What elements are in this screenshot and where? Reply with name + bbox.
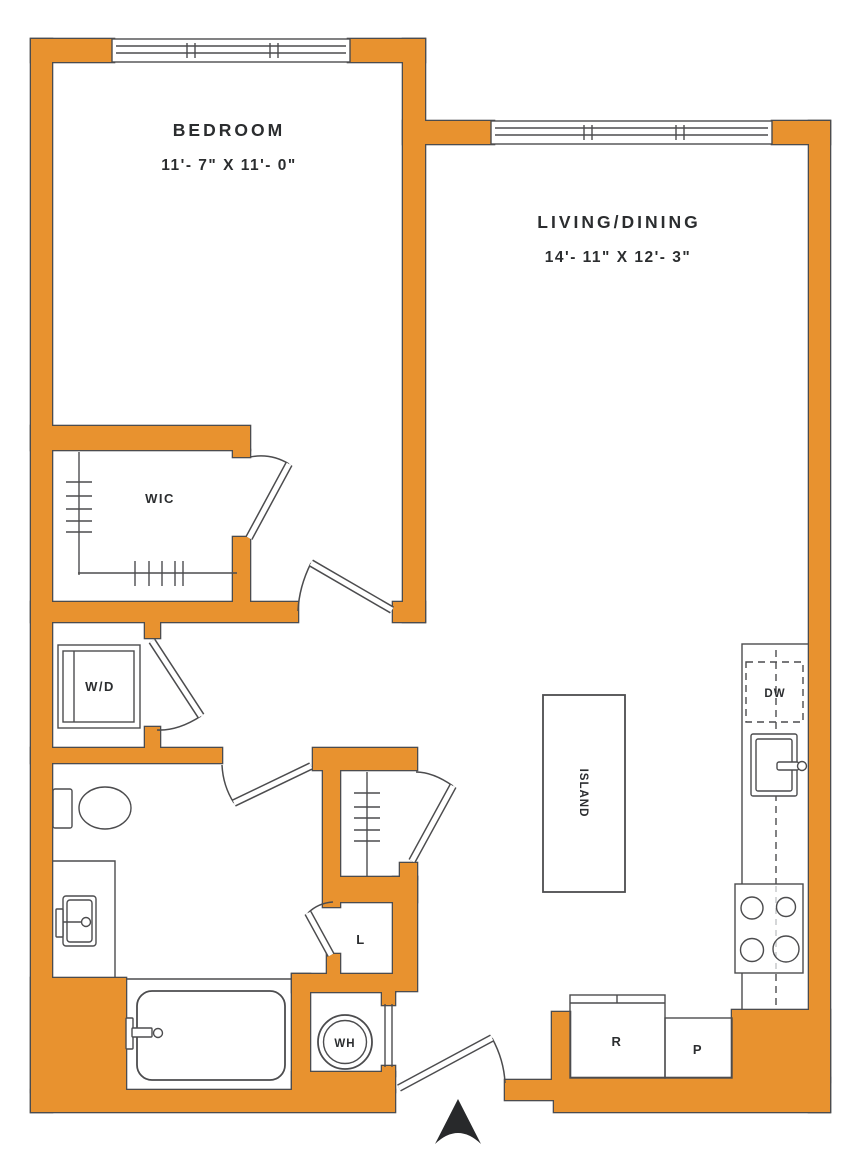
entry-closet-rod [354,772,380,877]
wall-segment [554,1078,830,1112]
wall-segment [732,1010,830,1082]
wall-segment [31,748,222,763]
wall-segment [31,39,52,1112]
bedroom-label: BEDROOM [173,120,285,140]
bathroom-vanity [52,861,115,977]
toilet [53,787,131,829]
wall-segment [403,121,494,144]
wall-segment [31,978,126,1092]
floor-plan-drawing: BEDROOM 11'- 7" X 11'- 0" LIVING/DINING … [0,0,847,1153]
wall-segment [145,622,160,638]
washer-dryer-label: W/D [85,679,115,694]
floor-plan: BEDROOM 11'- 7" X 11'- 0" LIVING/DINING … [0,0,847,1153]
wall-segment [552,1012,570,1080]
refrigerator-label: R [612,1034,623,1049]
wall-segment [31,39,114,62]
north-arrow-icon [435,1099,481,1144]
water-heater-door [385,1004,392,1067]
wall-segment [400,863,417,879]
laundry-closet-door [152,641,201,730]
wic-door [249,456,289,538]
wic-closet-rods [66,452,237,586]
living-label: LIVING/DINING [537,212,700,232]
living-dimensions: 14'- 11" X 12'- 3" [545,249,691,266]
wic-label: WIC [145,491,175,506]
bedroom-window [112,39,350,62]
entry-closet-door [412,772,453,861]
labels: BEDROOM 11'- 7" X 11'- 0" LIVING/DINING … [85,120,785,1057]
bathroom-door [222,765,311,803]
wall-segment [809,121,830,1112]
island-label: ISLAND [577,769,589,818]
pantry-label: P [693,1042,703,1057]
wall-segment [31,426,250,450]
water-heater-label: WH [334,1038,355,1050]
wall-segment [393,877,417,991]
wall-segment [31,1090,395,1112]
bathtub [126,979,292,1080]
wall-segment [233,450,250,457]
wall-segment [382,992,395,1005]
living-window [491,121,772,144]
wall-segment [313,748,417,770]
wall-segment [233,537,250,604]
range [735,884,803,973]
wall-segment [393,602,425,622]
walls [31,39,830,1112]
bedroom-door [298,563,392,611]
bedroom-dimensions: 11'- 7" X 11'- 0" [161,157,296,174]
linen-closet-door [308,902,333,955]
walls-fill [31,39,830,1112]
linen-label: L [356,932,365,947]
wall-segment [292,1072,395,1092]
entry-door [399,1038,505,1088]
wall-segment [31,602,298,622]
wall-segment [327,954,340,976]
dishwasher-label: DW [764,688,785,700]
